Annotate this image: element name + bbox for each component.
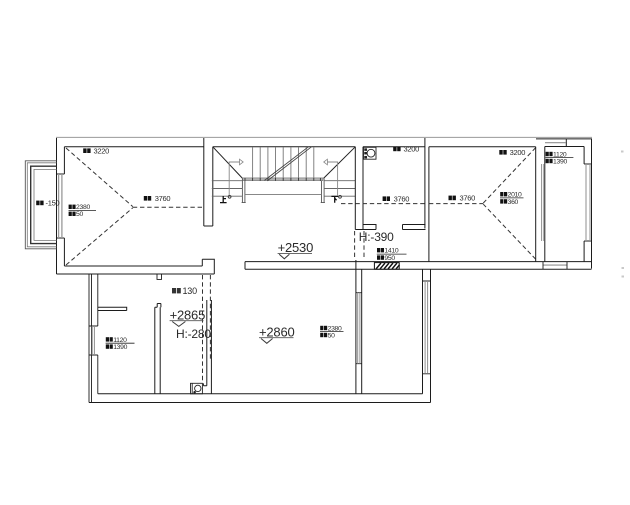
svg-text:1390: 1390 (553, 158, 567, 165)
svg-text:1390: 1390 (113, 344, 127, 351)
svg-text:950: 950 (384, 255, 395, 262)
svg-text:50: 50 (328, 332, 335, 339)
svg-text:50: 50 (76, 211, 83, 218)
svg-text:1120: 1120 (113, 337, 127, 344)
svg-text:1410: 1410 (384, 248, 398, 255)
svg-text:3200: 3200 (404, 145, 420, 154)
svg-text:130: 130 (183, 286, 198, 296)
svg-text:360: 360 (508, 199, 519, 206)
svg-text:3200: 3200 (510, 148, 526, 157)
svg-text:3220: 3220 (94, 146, 110, 155)
svg-text:H:-280: H:-280 (176, 327, 211, 341)
svg-text:3760: 3760 (394, 194, 410, 203)
svg-text:3760: 3760 (155, 194, 171, 203)
svg-text:3760: 3760 (460, 194, 476, 203)
svg-text:H:-390: H:-390 (359, 230, 394, 244)
svg-text:-150: -150 (46, 199, 60, 208)
